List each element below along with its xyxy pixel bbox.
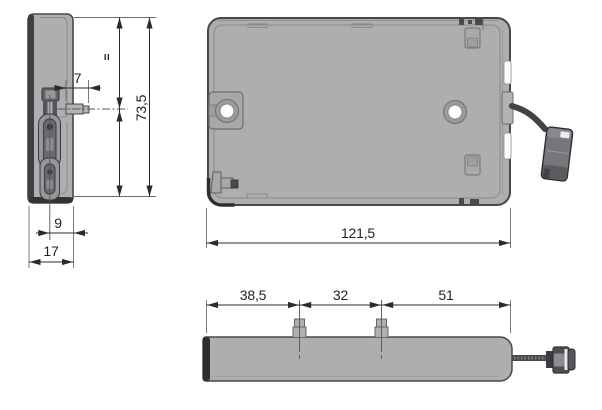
dimension-label-38-5: 38,5 (240, 287, 267, 303)
snap-clip-upper (465, 28, 480, 48)
edge-slot-upper (504, 61, 511, 84)
connector (541, 127, 573, 182)
technical-drawing-canvas: 7 = 73,5 9 (0, 0, 602, 410)
dimension-overall-width: 121,5 (207, 208, 511, 248)
bottom-view: 38,5 32 51 (203, 287, 575, 381)
technical-drawing: 7 = 73,5 9 (0, 0, 602, 410)
dimension-label-51: 51 (438, 287, 454, 303)
screw-hole-right (448, 105, 462, 119)
snap-clip-lower (465, 155, 480, 175)
latch-top-slot (46, 91, 56, 99)
dimension-label-9: 9 (54, 215, 62, 231)
connector-bottom (546, 347, 575, 373)
dimension-label-32: 32 (333, 287, 349, 303)
screw-boss-right (444, 101, 467, 124)
front-view: 121,5 (207, 18, 574, 248)
bottom-view-front-edge (203, 337, 210, 381)
cable (512, 106, 545, 129)
dimension-overall-height: 73,5 (133, 18, 150, 197)
dimension-label-121-5: 121,5 (341, 225, 375, 241)
connector-notch (560, 131, 570, 138)
dimension-row-bottom: 38,5 32 51 (207, 287, 511, 333)
side-view-front-edge (28, 14, 34, 203)
bottom-view-body (203, 337, 512, 381)
screw-boss-left (209, 92, 243, 129)
screw-hole-left (220, 104, 234, 118)
connector-cap (568, 349, 575, 370)
dimension-label-7: 7 (74, 70, 82, 86)
edge-slot-lower (504, 133, 511, 159)
dimension-equal-spacing: = (100, 18, 120, 197)
side-view: 7 = 73,5 9 (28, 14, 156, 268)
dimension-label-17: 17 (43, 243, 59, 259)
dimension-label-73-5: 73,5 (133, 94, 149, 121)
dimension-label-equal: = (100, 53, 114, 60)
connector-stripe (565, 349, 568, 370)
dimension-overall-depth: 17 (29, 206, 74, 268)
